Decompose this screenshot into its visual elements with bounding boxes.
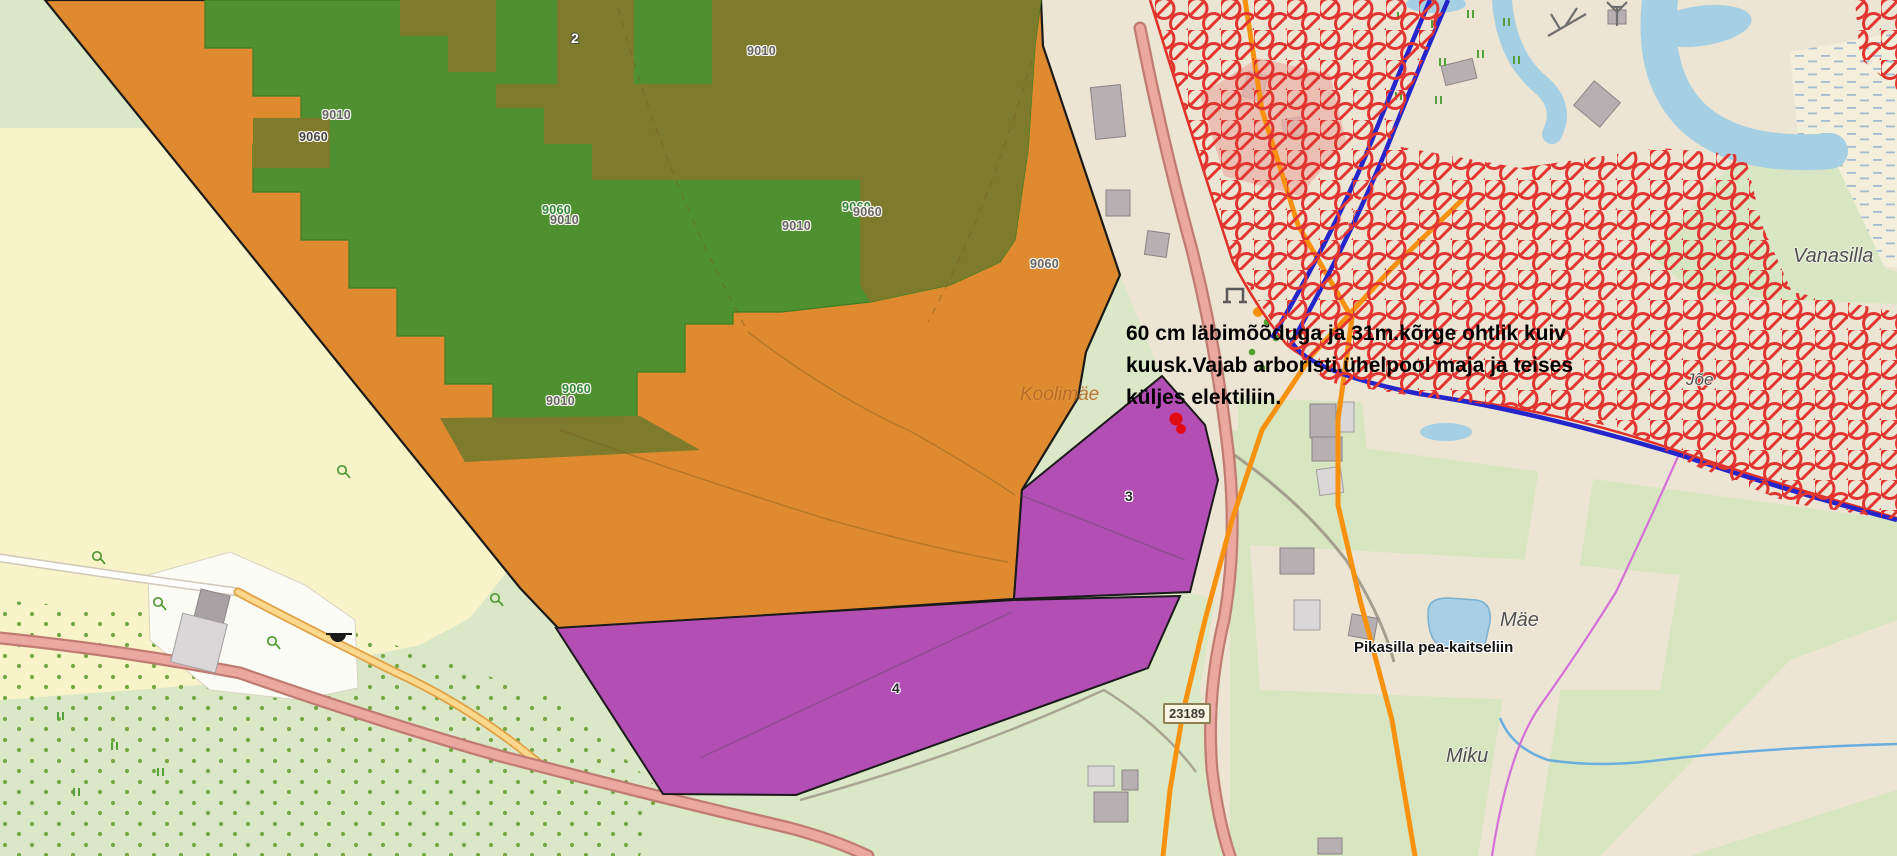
tree-annotation-line1: 60 cm läbimõõduga ja 31m.kõrge ohtlik ku… xyxy=(1126,318,1573,350)
map-layers xyxy=(0,0,1897,856)
pond-small xyxy=(1420,423,1472,441)
pond-pikasilla xyxy=(1428,598,1490,650)
map-canvas[interactable]: 9010 9010 9060 9060 9010 9010 9060 9060 … xyxy=(0,0,1897,856)
tree-annotation-line2: kuusk.Vajab arboristi.ühelpool maja ja t… xyxy=(1126,350,1573,382)
road-number-shield: 23189 xyxy=(1163,703,1211,724)
tree-annotation-line3: küljes elektiliin. xyxy=(1126,382,1573,414)
tree-annotation: 60 cm läbimõõduga ja 31m.kõrge ohtlik ku… xyxy=(1126,318,1573,414)
